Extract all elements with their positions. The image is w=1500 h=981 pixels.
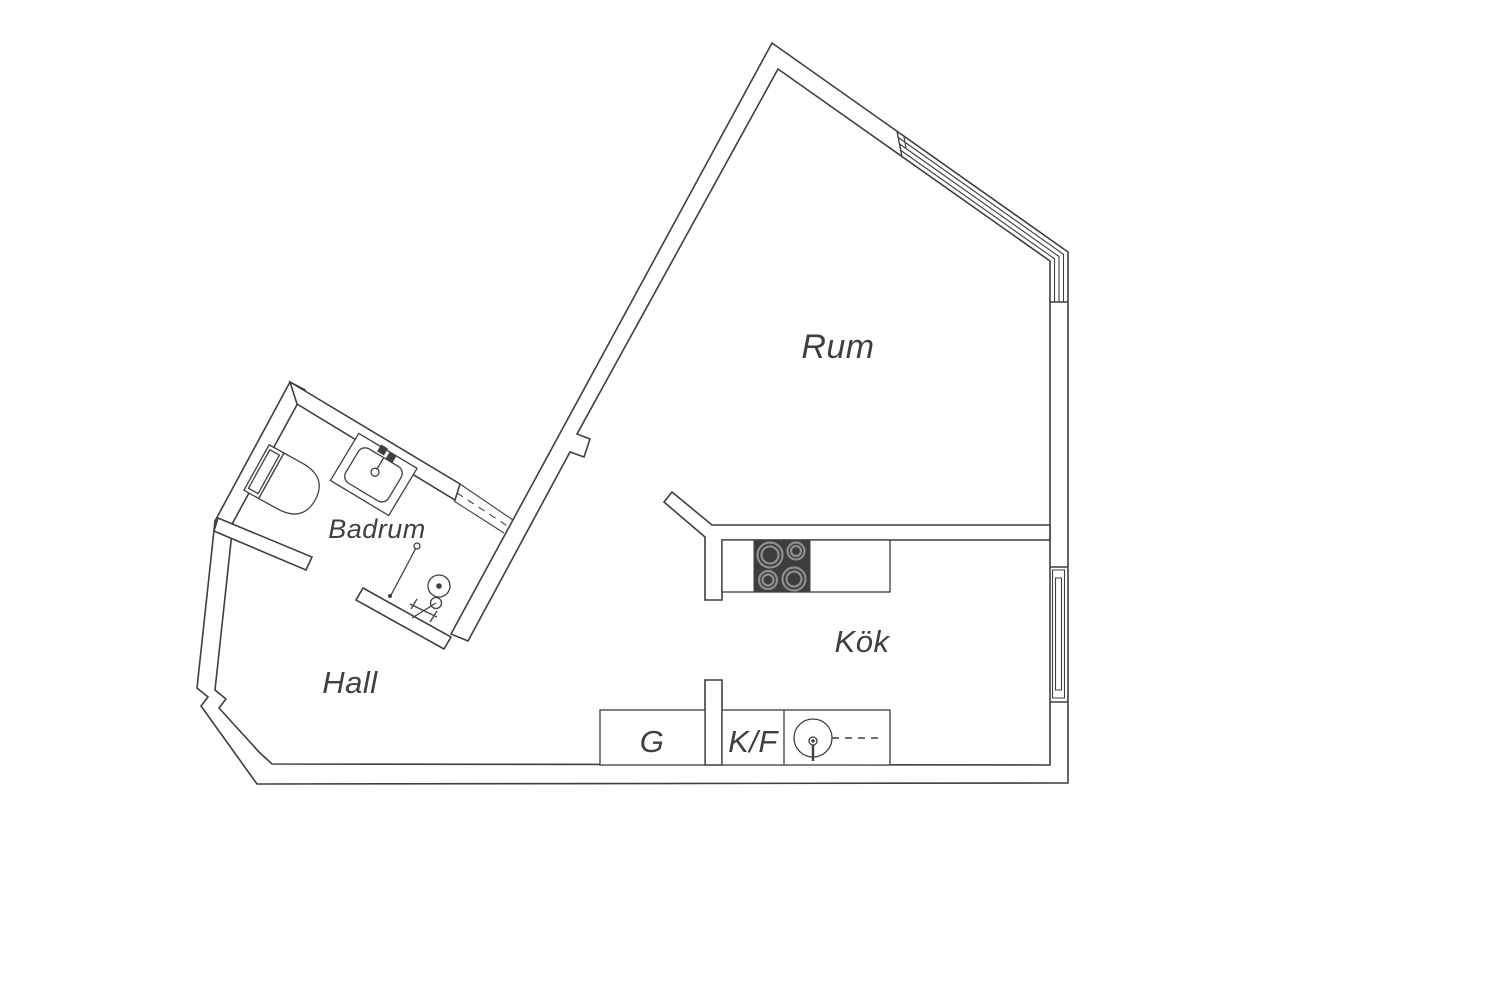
- unit-label-cabinet: G: [640, 724, 665, 759]
- sink-drain-dot: [811, 739, 814, 742]
- opening-edge-inner: [454, 501, 504, 533]
- washbasin-icon: [330, 432, 418, 516]
- unit-label-fridge-freezer: K/F: [728, 724, 779, 759]
- kitchen-lower-stub-wall: [705, 680, 722, 765]
- floor-plan-page: Rum Badrum Hall Kök G K/F: [0, 0, 1500, 981]
- room-label-hall: Hall: [322, 665, 378, 700]
- room-label-badrum: Badrum: [328, 514, 426, 544]
- washbasin-counter: [330, 433, 417, 515]
- windows: [897, 131, 1068, 702]
- opening-edge-outer: [460, 484, 513, 520]
- shower-head-center: [436, 583, 442, 589]
- room-label-kok: Kök: [835, 624, 891, 659]
- bathroom-wall-opening: [454, 484, 513, 533]
- room-label-rum: Rum: [801, 328, 874, 366]
- floor-plan-svg: Rum Badrum Hall Kök G K/F: [0, 0, 1500, 981]
- shower-rail-base: [388, 594, 392, 598]
- stove-icon: [754, 540, 810, 592]
- opening-dashed-line: [457, 493, 509, 527]
- shower-rail: [390, 548, 416, 597]
